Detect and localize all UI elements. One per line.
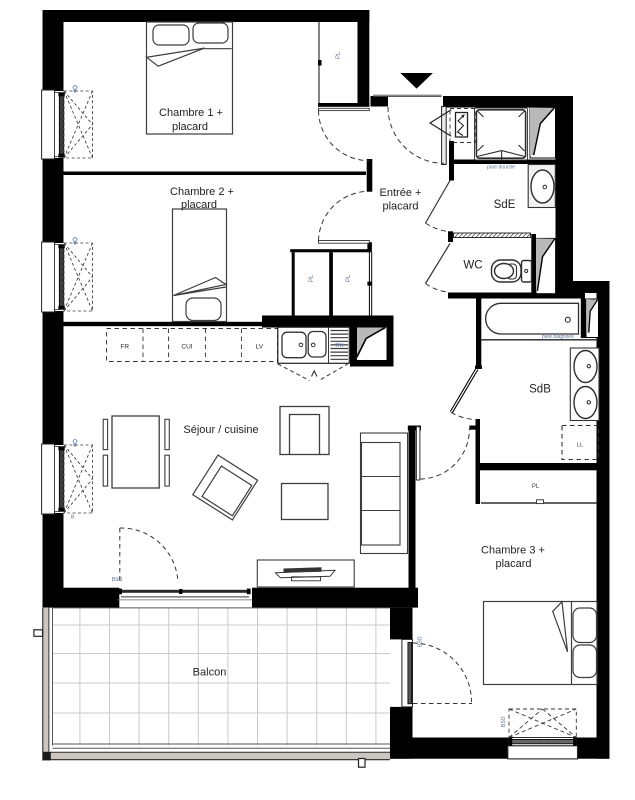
- svg-text:PL: PL: [346, 274, 352, 282]
- svg-text:FR: FR: [120, 344, 129, 351]
- svg-text:BSO: BSO: [112, 577, 123, 583]
- svg-text:Entrée +: Entrée +: [380, 187, 422, 199]
- svg-text:placard: placard: [495, 558, 531, 570]
- svg-text:PL: PL: [309, 274, 315, 282]
- svg-text:placard: placard: [382, 201, 418, 213]
- svg-text:Chambre 1 +: Chambre 1 +: [159, 107, 223, 119]
- svg-text:SdB: SdB: [529, 384, 551, 396]
- svg-text:B: B: [71, 515, 75, 521]
- svg-text:BSO: BSO: [501, 716, 507, 727]
- svg-text:Balcon: Balcon: [193, 667, 227, 679]
- svg-text:placard: placard: [181, 199, 217, 211]
- svg-text:WC: WC: [463, 260, 482, 272]
- svg-text:pare douche: pare douche: [487, 165, 515, 171]
- svg-text:Chambre 3 +: Chambre 3 +: [481, 545, 545, 557]
- svg-text:PL: PL: [532, 484, 540, 490]
- svg-text:TRI: TRI: [335, 343, 343, 349]
- svg-text:CUI: CUI: [181, 344, 192, 351]
- svg-text:Chambre 2 +: Chambre 2 +: [170, 186, 234, 198]
- svg-text:placard: placard: [172, 121, 208, 133]
- svg-text:pare baignoire: pare baignoire: [542, 334, 574, 340]
- svg-text:PL: PL: [336, 51, 342, 59]
- svg-text:LV: LV: [256, 344, 264, 351]
- svg-text:BSO: BSO: [418, 636, 424, 647]
- svg-text:Séjour / cuisine: Séjour / cuisine: [183, 424, 258, 436]
- svg-text:LL: LL: [577, 443, 583, 449]
- svg-text:SdE: SdE: [494, 199, 516, 211]
